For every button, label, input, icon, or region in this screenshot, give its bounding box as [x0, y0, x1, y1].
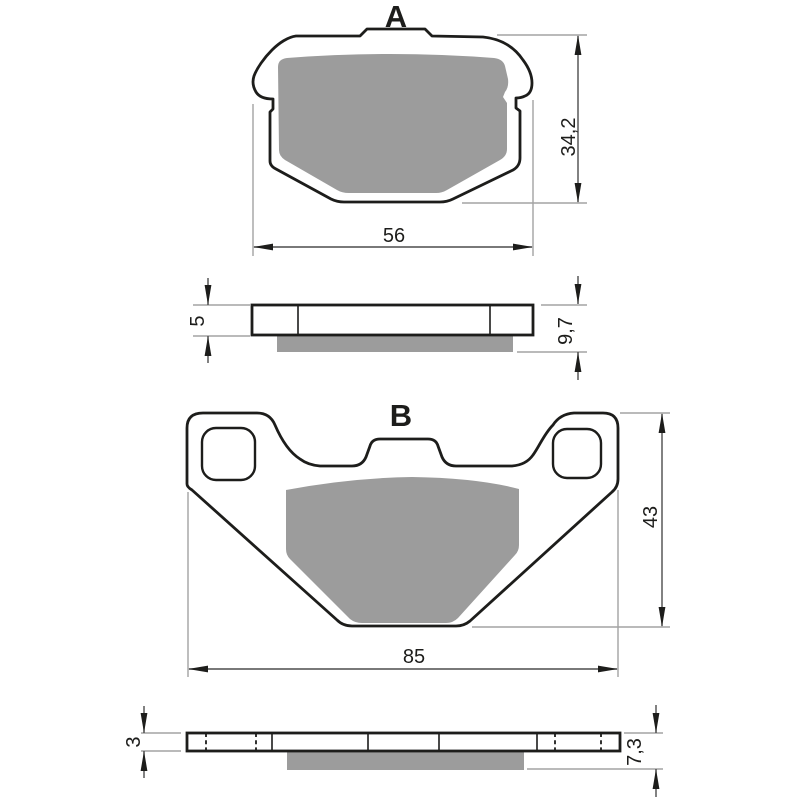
brake-pad-diagram: A 34,2 56 5	[0, 0, 800, 800]
arrow-down-icon	[653, 713, 660, 733]
arrow-up-icon	[575, 352, 582, 372]
pad-b-right-mounting-hole	[553, 429, 601, 478]
arrow-up-icon	[659, 413, 666, 433]
pad-a-top-view: A	[253, 0, 532, 202]
arrow-right-icon	[513, 244, 533, 251]
arrow-down-icon	[659, 607, 666, 627]
side-b-plate-thickness-value: 3	[123, 736, 145, 747]
pad-b-width-value: 85	[403, 646, 425, 668]
side-b-friction-layer	[287, 750, 524, 770]
side-a-backing-plate	[252, 305, 533, 335]
arrow-up-icon	[205, 336, 212, 356]
arrow-left-icon	[188, 666, 208, 673]
pad-b-side-view	[187, 733, 620, 770]
side-a-plate-thickness-value: 5	[187, 315, 209, 326]
arrow-down-icon	[575, 284, 582, 304]
side-a-friction-layer	[277, 334, 513, 352]
dimension-side-a-plate: 5	[187, 278, 250, 363]
pad-b-label: B	[390, 398, 412, 433]
arrow-up-icon	[575, 35, 582, 55]
arrow-up-icon	[653, 769, 660, 789]
side-b-total-thickness-value: 7,3	[624, 738, 646, 766]
pad-a-width-value: 56	[383, 225, 405, 247]
arrow-up-icon	[141, 751, 148, 771]
arrow-down-icon	[205, 285, 212, 305]
pad-b-left-mounting-hole	[202, 428, 255, 480]
dimension-side-b-plate: 3	[123, 706, 181, 778]
technical-drawing-page: A 34,2 56 5	[0, 0, 800, 800]
arrow-down-icon	[575, 183, 582, 203]
pad-a-friction-surface	[278, 54, 508, 193]
side-a-total-thickness-value: 9,7	[555, 317, 577, 345]
pad-b-top-view: B	[187, 398, 618, 626]
pad-a-height-value: 34,2	[558, 118, 580, 157]
arrow-left-icon	[253, 244, 273, 251]
pad-b-height-value: 43	[640, 506, 662, 528]
pad-a-side-view	[252, 305, 533, 352]
arrow-down-icon	[141, 713, 148, 733]
arrow-right-icon	[598, 666, 618, 673]
